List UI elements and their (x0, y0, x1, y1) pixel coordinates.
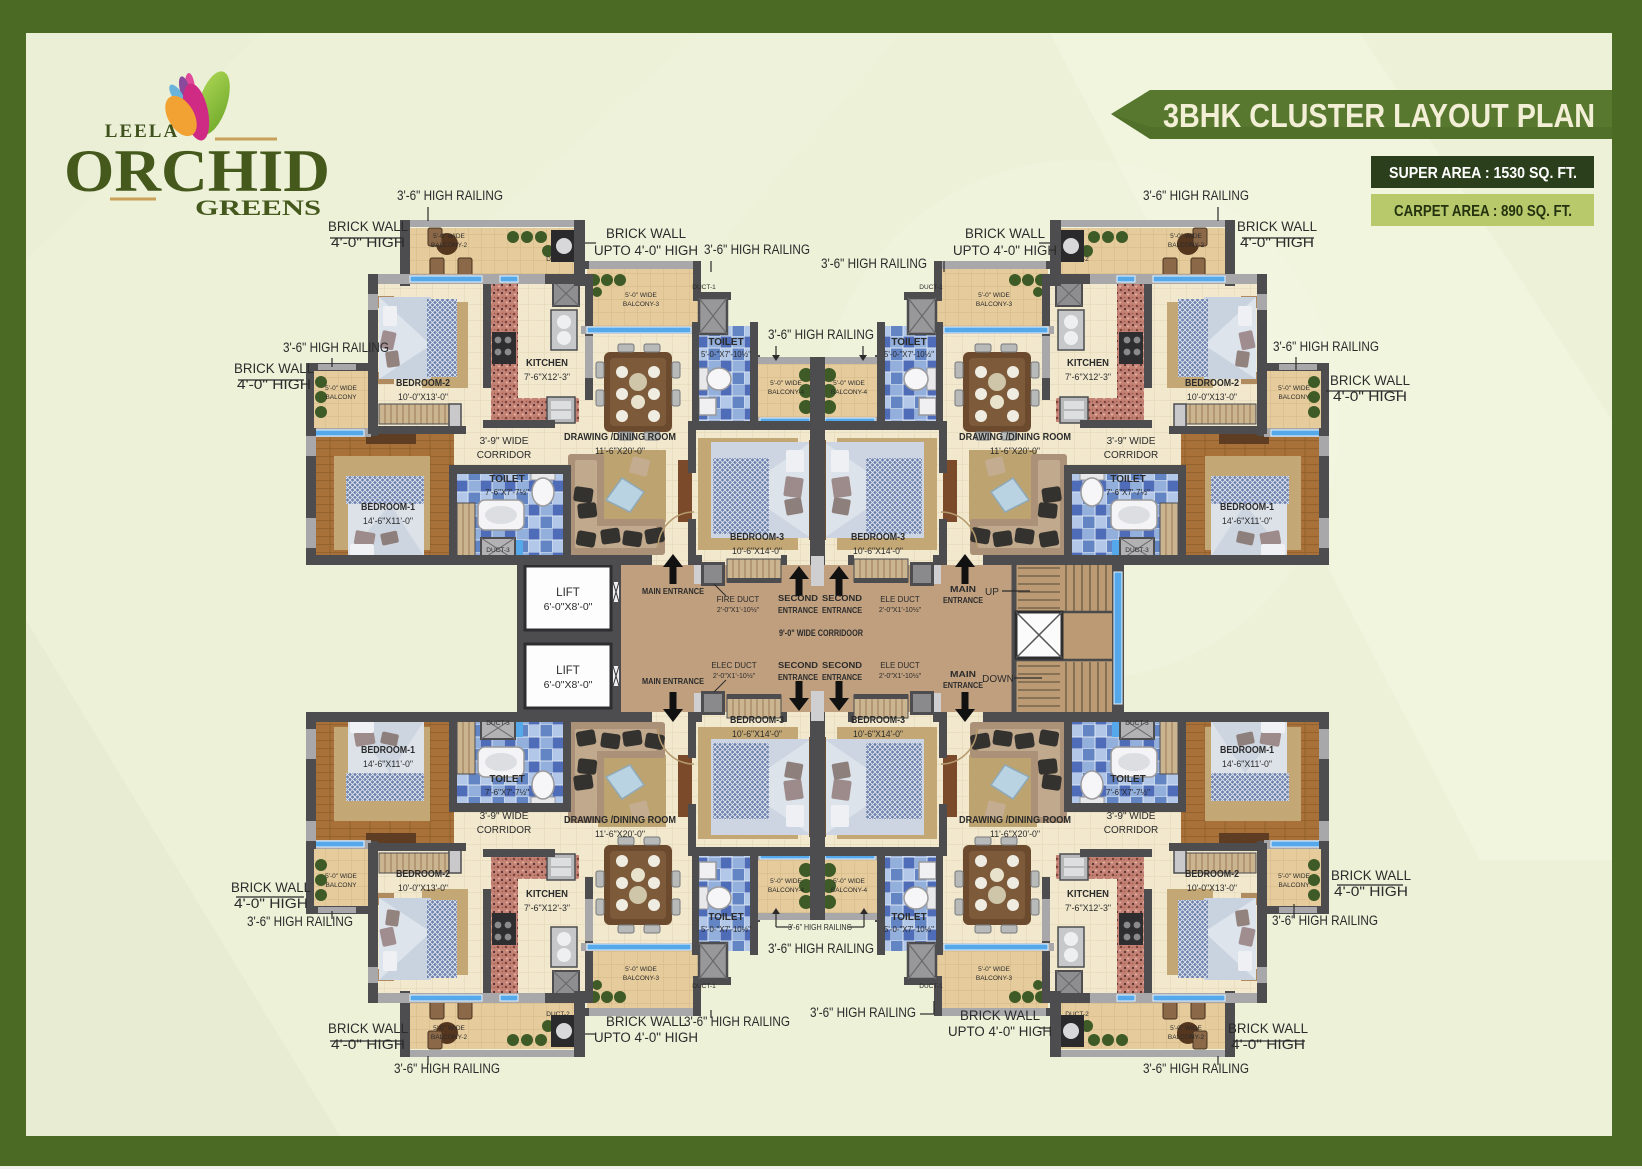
svg-text:DUCT-2: DUCT-2 (1065, 1011, 1089, 1018)
svg-text:14'-6"X11'-0": 14'-6"X11'-0" (1222, 759, 1272, 770)
svg-text:BEDROOM-2: BEDROOM-2 (1185, 869, 1239, 880)
svg-text:4'-0" HIGH: 4'-0" HIGH (1334, 884, 1408, 899)
svg-text:5'-0" WIDE: 5'-0" WIDE (978, 292, 1010, 299)
svg-text:5'-0" WIDE: 5'-0" WIDE (1170, 1025, 1202, 1032)
svg-text:5'-0" WIDE: 5'-0" WIDE (325, 873, 357, 880)
svg-text:BRICK WALL: BRICK WALL (1237, 219, 1317, 234)
svg-text:DUCT-3: DUCT-3 (1125, 720, 1149, 727)
svg-text:BALCONY-2: BALCONY-2 (1168, 242, 1205, 249)
svg-text:ENTRANCE: ENTRANCE (822, 673, 863, 682)
svg-text:TOILET: TOILET (1110, 774, 1145, 785)
svg-text:TOILET: TOILET (891, 912, 926, 923)
svg-text:4'-0" HIGH: 4'-0" HIGH (1231, 1037, 1305, 1052)
svg-text:DUCT-3: DUCT-3 (1125, 547, 1149, 554)
svg-text:5'-0" WIDE: 5'-0" WIDE (433, 1025, 465, 1032)
svg-text:MAIN ENTRANCE: MAIN ENTRANCE (642, 586, 704, 596)
svg-text:14'-6"X11'-0": 14'-6"X11'-0" (363, 516, 413, 527)
svg-text:BEDROOM-2: BEDROOM-2 (396, 869, 450, 880)
svg-text:BALCONY: BALCONY (1278, 394, 1310, 401)
svg-text:FIRE DUCT: FIRE DUCT (717, 595, 760, 604)
svg-text:BALCONY-4: BALCONY-4 (831, 389, 868, 396)
svg-text:5'-0-"X7'-10½": 5'-0-"X7'-10½" (884, 349, 934, 359)
svg-text:MAIN: MAIN (950, 585, 976, 594)
svg-text:CORRIDOR: CORRIDOR (1104, 825, 1158, 836)
svg-text:10'-0"X13'-0": 10'-0"X13'-0" (1187, 392, 1237, 403)
svg-text:BEDROOM-3: BEDROOM-3 (851, 715, 905, 726)
svg-text:10'-6"X14'-0": 10'-6"X14'-0" (732, 729, 782, 740)
svg-text:4'-0" HIGH: 4'-0" HIGH (1240, 235, 1314, 250)
svg-text:7'-6"X12'-3": 7'-6"X12'-3" (524, 372, 570, 383)
svg-text:BRICK WALL: BRICK WALL (1228, 1021, 1308, 1036)
svg-text:3'-6" HIGH RAILING: 3'-6" HIGH RAILING (768, 327, 874, 342)
svg-text:BALCONY-2: BALCONY-2 (1168, 1034, 1205, 1041)
svg-text:11'-6"X20'-0": 11'-6"X20'-0" (990, 829, 1040, 840)
svg-text:3'-6" HIGH RAILING: 3'-6" HIGH RAILING (283, 340, 389, 355)
svg-text:BALCONY-3: BALCONY-3 (976, 301, 1013, 308)
svg-text:3'-6" HIGH RAILING: 3'-6" HIGH RAILING (810, 1005, 916, 1020)
svg-text:4'-0" HIGH: 4'-0" HIGH (237, 377, 311, 392)
svg-text:BALCONY: BALCONY (325, 882, 357, 889)
svg-text:3'-6" HIGH RAILING: 3'-6" HIGH RAILING (821, 256, 927, 271)
svg-text:BRICK WALL: BRICK WALL (328, 219, 408, 234)
svg-text:5'-0" WIDE: 5'-0" WIDE (625, 292, 657, 299)
svg-text:DUCT-1: DUCT-1 (692, 284, 716, 291)
svg-text:SECOND: SECOND (778, 661, 818, 670)
svg-text:MAIN ENTRANCE: MAIN ENTRANCE (642, 676, 704, 686)
svg-text:ENTRANCE: ENTRANCE (943, 681, 984, 690)
svg-text:BRICK WALL: BRICK WALL (965, 226, 1045, 241)
svg-text:5'-0" WIDE: 5'-0" WIDE (1278, 873, 1310, 880)
svg-text:3'-6" HIGH RAILING: 3'-6" HIGH RAILING (1272, 913, 1378, 928)
svg-text:10'-6"X14'-0": 10'-6"X14'-0" (853, 546, 903, 557)
svg-text:GREENS: GREENS (195, 195, 321, 220)
svg-text:CORRIDOR: CORRIDOR (477, 825, 531, 836)
svg-text:SECOND: SECOND (822, 594, 862, 603)
svg-text:5'-0" WIDE: 5'-0" WIDE (978, 966, 1010, 973)
svg-text:TOILET: TOILET (708, 912, 743, 923)
svg-text:UPTO 4'-0" HIGH: UPTO 4'-0" HIGH (948, 1024, 1052, 1039)
svg-text:7'-6"X12'-3": 7'-6"X12'-3" (524, 903, 570, 914)
svg-text:LIFT: LIFT (556, 587, 580, 599)
svg-text:DRAWING /DINING ROOM: DRAWING /DINING ROOM (959, 815, 1071, 826)
svg-text:TOILET: TOILET (489, 474, 524, 485)
svg-text:5'-0" WIDE: 5'-0" WIDE (770, 380, 802, 387)
svg-text:10'-0"X13'-0": 10'-0"X13'-0" (1187, 883, 1237, 894)
svg-text:BALCONY-4: BALCONY-4 (831, 887, 868, 894)
svg-text:6'-0"X8'-0": 6'-0"X8'-0" (544, 601, 593, 613)
svg-text:ELE DUCT: ELE DUCT (880, 595, 920, 604)
svg-text:BALCONY-4: BALCONY-4 (768, 887, 805, 894)
svg-text:ELE DUCT: ELE DUCT (880, 661, 920, 670)
svg-text:DRAWING /DINING ROOM: DRAWING /DINING ROOM (959, 432, 1071, 443)
svg-text:BEDROOM-3: BEDROOM-3 (730, 532, 784, 543)
svg-text:2'-0"X1'-10½": 2'-0"X1'-10½" (879, 606, 922, 614)
svg-text:7'-6"X12'-3": 7'-6"X12'-3" (1065, 903, 1111, 914)
svg-text:ENTRANCE: ENTRANCE (778, 606, 819, 615)
svg-text:BEDROOM-2: BEDROOM-2 (1185, 378, 1239, 389)
svg-text:BEDROOM-3: BEDROOM-3 (730, 715, 784, 726)
svg-text:3'-6" HIGH RAILING: 3'-6" HIGH RAILING (788, 923, 852, 932)
svg-text:BEDROOM-2: BEDROOM-2 (396, 378, 450, 389)
svg-text:5'-0" WIDE: 5'-0" WIDE (833, 380, 865, 387)
svg-text:BRICK WALL: BRICK WALL (1331, 868, 1411, 883)
svg-text:UP: UP (985, 587, 999, 598)
svg-text:11'-6"X20'-0": 11'-6"X20'-0" (595, 446, 645, 457)
svg-text:3'-9" WIDE: 3'-9" WIDE (480, 436, 529, 447)
svg-text:BRICK WALL: BRICK WALL (606, 226, 686, 241)
svg-text:BALCONY-2: BALCONY-2 (431, 1034, 468, 1041)
svg-text:DUCT-3: DUCT-3 (486, 547, 510, 554)
svg-text:MAIN: MAIN (950, 670, 976, 679)
svg-text:3'-6" HIGH RAILING: 3'-6" HIGH RAILING (1273, 339, 1379, 354)
svg-text:DRAWING /DINING ROOM: DRAWING /DINING ROOM (564, 815, 676, 826)
svg-text:TOILET: TOILET (891, 337, 926, 348)
svg-text:KITCHEN: KITCHEN (526, 358, 568, 369)
svg-text:3'-6" HIGH RAILING: 3'-6" HIGH RAILING (1143, 188, 1249, 203)
svg-text:SECOND: SECOND (822, 661, 862, 670)
svg-text:UPTO 4'-0" HIGH: UPTO 4'-0" HIGH (594, 1030, 698, 1045)
svg-text:DUCT-2: DUCT-2 (546, 1011, 570, 1018)
svg-text:BALCONY-4: BALCONY-4 (768, 389, 805, 396)
svg-text:SECOND: SECOND (778, 594, 818, 603)
svg-text:TOILET: TOILET (708, 337, 743, 348)
svg-text:3'-6" HIGH RAILING: 3'-6" HIGH RAILING (247, 914, 353, 929)
svg-text:KITCHEN: KITCHEN (1067, 889, 1109, 900)
svg-text:4'-0" HIGH: 4'-0" HIGH (331, 1037, 405, 1052)
svg-text:DUCT-1: DUCT-1 (692, 983, 716, 990)
svg-text:BALCONY-3: BALCONY-3 (623, 975, 660, 982)
svg-text:ENTRANCE: ENTRANCE (943, 596, 984, 605)
svg-text:LIFT: LIFT (556, 665, 580, 677)
svg-text:5'-0" WIDE: 5'-0" WIDE (1170, 233, 1202, 240)
svg-text:BALCONY-3: BALCONY-3 (976, 975, 1013, 982)
svg-text:ENTRANCE: ENTRANCE (822, 606, 863, 615)
svg-text:BRICK WALL: BRICK WALL (960, 1008, 1040, 1023)
svg-text:ENTRANCE: ENTRANCE (778, 673, 819, 682)
svg-text:BRICK WALL: BRICK WALL (1330, 373, 1410, 388)
svg-text:SUPER AREA : 1530 SQ. FT.: SUPER AREA : 1530 SQ. FT. (1389, 165, 1577, 182)
svg-text:KITCHEN: KITCHEN (526, 889, 568, 900)
svg-text:BEDROOM-3: BEDROOM-3 (851, 532, 905, 543)
svg-text:2'-0"X1'-10½": 2'-0"X1'-10½" (717, 606, 760, 614)
svg-text:TOILET: TOILET (1110, 474, 1145, 485)
svg-text:5'-0" WIDE: 5'-0" WIDE (1278, 385, 1310, 392)
svg-text:DOWN: DOWN (982, 674, 1014, 685)
svg-text:7'-6"X7'-7½": 7'-6"X7'-7½" (485, 487, 529, 497)
svg-text:3'-6" HIGH RAILING: 3'-6" HIGH RAILING (394, 1061, 500, 1076)
svg-text:3'-6" HIGH RAILING: 3'-6" HIGH RAILING (704, 242, 810, 257)
svg-text:9'-0" WIDE CORRIDOOR: 9'-0" WIDE CORRIDOOR (779, 628, 863, 638)
svg-text:BEDROOM-1: BEDROOM-1 (1220, 502, 1274, 513)
svg-text:BALCONY-3: BALCONY-3 (623, 301, 660, 308)
svg-text:DUCT-2: DUCT-2 (546, 256, 570, 263)
svg-text:2'-0"X1'-10½": 2'-0"X1'-10½" (713, 672, 756, 680)
svg-text:DUCT-1: DUCT-1 (919, 284, 943, 291)
svg-text:4'-0" HIGH: 4'-0" HIGH (234, 896, 308, 911)
svg-text:3'-6" HIGH RAILING: 3'-6" HIGH RAILING (684, 1014, 790, 1029)
svg-text:2'-0"X1'-10½": 2'-0"X1'-10½" (879, 672, 922, 680)
svg-text:ELEC DUCT: ELEC DUCT (711, 661, 756, 670)
svg-text:3'-6" HIGH RAILING: 3'-6" HIGH RAILING (397, 188, 503, 203)
svg-text:BEDROOM-1: BEDROOM-1 (361, 745, 415, 756)
svg-text:UPTO 4'-0" HIGH: UPTO 4'-0" HIGH (953, 243, 1057, 258)
svg-text:BRICK WALL: BRICK WALL (231, 880, 311, 895)
svg-text:5'-0-"X7'-10½": 5'-0-"X7'-10½" (701, 349, 751, 359)
svg-text:7'-6"X7'-7½": 7'-6"X7'-7½" (1106, 787, 1150, 797)
svg-text:5'-0" WIDE: 5'-0" WIDE (625, 966, 657, 973)
svg-text:6'-0"X8'-0": 6'-0"X8'-0" (544, 679, 593, 691)
svg-text:CORRIDOR: CORRIDOR (1104, 450, 1158, 461)
svg-text:11'-6"X20'-0": 11'-6"X20'-0" (990, 446, 1040, 457)
svg-text:BALCONY: BALCONY (1278, 882, 1310, 889)
svg-text:5'-0-"X7'-10½": 5'-0-"X7'-10½" (884, 924, 934, 934)
svg-text:3'-6" HIGH RAILING: 3'-6" HIGH RAILING (768, 941, 874, 956)
svg-text:10'-0"X13'-0": 10'-0"X13'-0" (398, 883, 448, 894)
svg-text:BRICK WALL: BRICK WALL (606, 1014, 686, 1029)
svg-text:BALCONY-2: BALCONY-2 (431, 242, 468, 249)
svg-text:DUCT-1: DUCT-1 (919, 983, 943, 990)
svg-text:BALCONY: BALCONY (325, 394, 357, 401)
svg-text:3'-9" WIDE: 3'-9" WIDE (480, 811, 529, 822)
svg-text:10'-6"X14'-0": 10'-6"X14'-0" (853, 729, 903, 740)
svg-text:5'-0" WIDE: 5'-0" WIDE (325, 385, 357, 392)
svg-text:BRICK WALL: BRICK WALL (234, 361, 314, 376)
svg-text:14'-6"X11'-0": 14'-6"X11'-0" (363, 759, 413, 770)
svg-text:4'-0" HIGH: 4'-0" HIGH (331, 235, 405, 250)
svg-text:7'-6"X12'-3": 7'-6"X12'-3" (1065, 372, 1111, 383)
svg-text:3'-6" HIGH RAILING: 3'-6" HIGH RAILING (1143, 1061, 1249, 1076)
svg-text:5'-0" WIDE: 5'-0" WIDE (770, 878, 802, 885)
svg-text:BRICK WALL: BRICK WALL (328, 1021, 408, 1036)
svg-text:BEDROOM-1: BEDROOM-1 (361, 502, 415, 513)
svg-text:CARPET AREA : 890 SQ. FT.: CARPET AREA : 890 SQ. FT. (1394, 203, 1572, 220)
svg-text:5'-0-"X7'-10½": 5'-0-"X7'-10½" (701, 924, 751, 934)
svg-text:7'-6"X7'-7½": 7'-6"X7'-7½" (1106, 487, 1150, 497)
svg-text:3'-9" WIDE: 3'-9" WIDE (1107, 811, 1156, 822)
svg-text:10'-0"X13'-0": 10'-0"X13'-0" (398, 392, 448, 403)
svg-text:TOILET: TOILET (489, 774, 524, 785)
svg-text:14'-6"X11'-0": 14'-6"X11'-0" (1222, 516, 1272, 527)
svg-text:DUCT-2: DUCT-2 (1065, 256, 1089, 263)
svg-text:5'-0" WIDE: 5'-0" WIDE (833, 878, 865, 885)
svg-text:7'-6"X7'-7½": 7'-6"X7'-7½" (485, 787, 529, 797)
svg-text:BEDROOM-1: BEDROOM-1 (1220, 745, 1274, 756)
svg-text:DRAWING /DINING ROOM: DRAWING /DINING ROOM (564, 432, 676, 443)
svg-text:UPTO 4'-0" HIGH: UPTO 4'-0" HIGH (594, 243, 698, 258)
svg-text:DUCT-3: DUCT-3 (486, 720, 510, 727)
svg-text:CORRIDOR: CORRIDOR (477, 450, 531, 461)
svg-text:10'-6"X14'-0": 10'-6"X14'-0" (732, 546, 782, 557)
svg-text:3'-9" WIDE: 3'-9" WIDE (1107, 436, 1156, 447)
svg-text:KITCHEN: KITCHEN (1067, 358, 1109, 369)
svg-text:5'-0" WIDE: 5'-0" WIDE (433, 233, 465, 240)
svg-text:11'-6"X20'-0": 11'-6"X20'-0" (595, 829, 645, 840)
svg-text:3BHK CLUSTER LAYOUT PLAN: 3BHK CLUSTER LAYOUT PLAN (1163, 97, 1595, 134)
